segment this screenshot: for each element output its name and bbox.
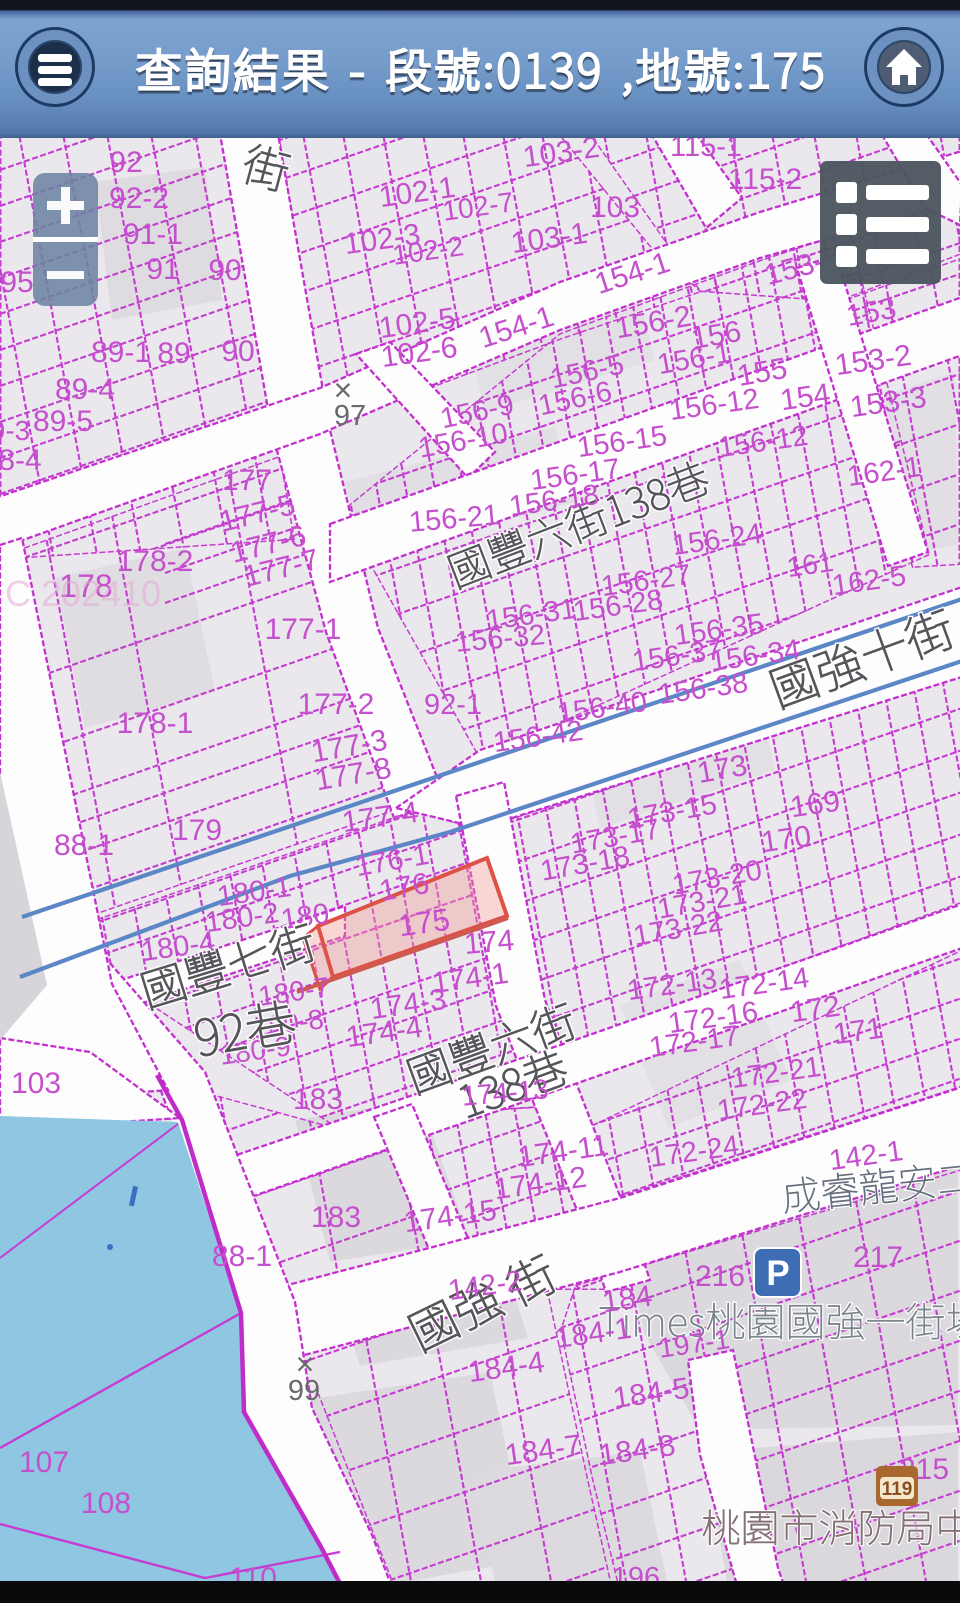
svg-text:89-4: 89-4 <box>55 373 115 406</box>
svg-text:115-2: 115-2 <box>728 163 803 196</box>
svg-text:161: 161 <box>785 546 836 583</box>
svg-text:92-1: 92-1 <box>424 689 482 721</box>
svg-text:103: 103 <box>11 1067 61 1100</box>
svg-text:91-1: 91-1 <box>123 218 183 251</box>
svg-text:91: 91 <box>146 253 179 286</box>
svg-text:108: 108 <box>81 1487 131 1520</box>
svg-text:90: 90 <box>208 254 241 287</box>
svg-text:92: 92 <box>109 146 142 179</box>
svg-text:90: 90 <box>221 335 254 368</box>
svg-text:183: 183 <box>311 1201 361 1234</box>
svg-text:169: 169 <box>788 785 842 825</box>
svg-text:171: 171 <box>831 1012 885 1052</box>
svg-text:88-1: 88-1 <box>212 1240 272 1273</box>
svg-text:103: 103 <box>590 191 640 224</box>
svg-text:178-1: 178-1 <box>117 707 194 740</box>
svg-text:P: P <box>766 1254 789 1293</box>
svg-text:C 202410: C 202410 <box>5 573 161 614</box>
svg-text:179: 179 <box>172 814 222 847</box>
svg-text:89: 89 <box>157 337 190 370</box>
svg-text:97: 97 <box>334 400 366 432</box>
svg-text:107: 107 <box>19 1446 69 1479</box>
svg-text:217: 217 <box>853 1241 903 1274</box>
svg-text:8-4: 8-4 <box>0 444 42 477</box>
svg-text:170: 170 <box>759 820 813 860</box>
svg-text:89-5: 89-5 <box>33 405 93 438</box>
svg-text:175: 175 <box>396 902 452 944</box>
svg-text:89-1: 89-1 <box>91 336 151 369</box>
svg-text:177-1: 177-1 <box>265 613 342 646</box>
svg-text:174: 174 <box>463 924 516 961</box>
svg-text:9-3: 9-3 <box>0 415 30 446</box>
svg-text:88-1: 88-1 <box>54 829 114 862</box>
svg-text:177-2: 177-2 <box>298 688 375 721</box>
svg-text:216: 216 <box>695 1260 745 1293</box>
svg-text:99: 99 <box>288 1375 320 1407</box>
svg-text:177: 177 <box>222 464 272 497</box>
svg-text:92-2: 92-2 <box>109 182 169 215</box>
svg-text:183: 183 <box>293 1083 343 1116</box>
svg-text:119: 119 <box>882 1479 913 1500</box>
svg-text:95: 95 <box>0 266 33 299</box>
